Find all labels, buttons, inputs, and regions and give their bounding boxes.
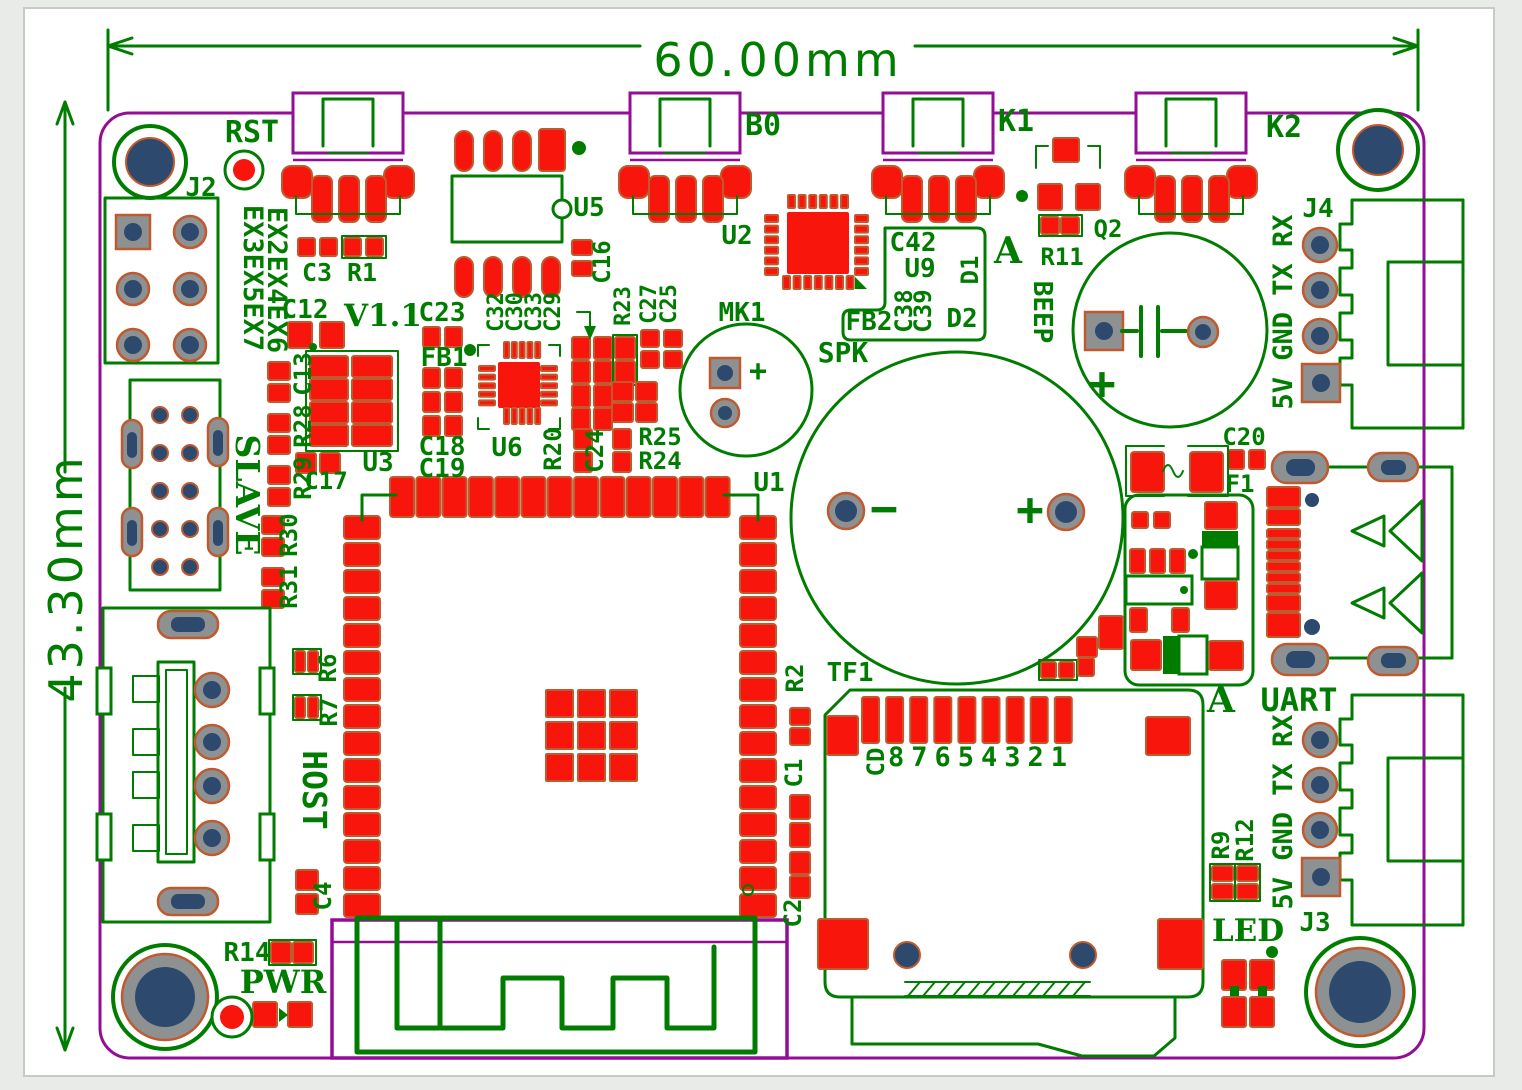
- silk-label-r28: R28: [289, 404, 317, 447]
- silk-label-c16: C16: [588, 240, 616, 283]
- pcb-layout-viewer: 60.00mm43.30mmRSTJ2EX3EX5EX7EX2EX4EX6C3R…: [0, 0, 1522, 1090]
- reset-pad: [225, 151, 263, 189]
- silk-label-c2: C2: [779, 899, 807, 928]
- silk-label-c12: C12: [282, 295, 329, 325]
- silk-label-c17: C17: [304, 467, 347, 495]
- silk-label-slave: SLAVE: [228, 435, 267, 556]
- silk-label-u5: U5: [573, 193, 604, 223]
- silk-label-fb2: FB2: [846, 307, 893, 337]
- silk-label-c25: C25: [657, 284, 682, 324]
- silk-label-rst: RST: [225, 115, 279, 150]
- silk-label-cd: CD: [862, 748, 890, 777]
- silk-label-87654321: 87654321: [888, 742, 1074, 773]
- silk-label-beep: BEEP: [1027, 281, 1057, 344]
- silk-label-u6: U6: [491, 433, 522, 463]
- silk-label-k1: K1: [998, 104, 1034, 139]
- pcb-drawing-canvas: 60.00mm43.30mmRSTJ2EX3EX5EX7EX2EX4EX6C3R…: [0, 0, 1522, 1090]
- silk-label-j3: J3: [1299, 908, 1330, 938]
- silk-label-pwr: PWR: [240, 963, 327, 1001]
- silk-label-q2: Q2: [1094, 215, 1123, 243]
- silk-label-c24: C24: [581, 429, 609, 472]
- silk-label-c39: C39: [909, 289, 937, 332]
- silk-label-f1: F1: [1226, 470, 1255, 498]
- silk-label-r24: R24: [638, 447, 681, 475]
- silk-label-u3: U3: [362, 448, 393, 478]
- silk-label--: +: [749, 354, 767, 389]
- ic-u3: [306, 343, 398, 451]
- silk-label-r6: R6: [314, 654, 342, 683]
- silk-label-5v-gnd-tx-rx: 5V GND TX RX: [1268, 714, 1299, 909]
- silk-label-b0: B0: [745, 108, 781, 143]
- silk-label-r20: R20: [539, 427, 567, 470]
- silk-label-c4: C4: [309, 882, 337, 911]
- silk-label-60-00mm: 60.00mm: [653, 33, 902, 87]
- silk-label-5v-gnd-tx-rx: 5V GND TX RX: [1268, 214, 1299, 409]
- silk-label-c3: C3: [302, 258, 332, 287]
- silk-label-c20: C20: [1222, 423, 1265, 451]
- silk-label-r23: R23: [611, 286, 636, 326]
- silk-label--: +: [1016, 482, 1044, 536]
- silk-label--: +: [1088, 356, 1116, 410]
- passives-right-of-u1: [790, 708, 810, 898]
- silk-label--: −: [870, 481, 898, 535]
- silk-label-j4: J4: [1302, 194, 1333, 224]
- silk-label-c13: C13: [289, 352, 317, 395]
- silk-label-j2: J2: [185, 173, 216, 203]
- silk-label-uart: UART: [1260, 681, 1337, 719]
- silk-label-c1: C1: [780, 759, 808, 788]
- silk-label-a: A: [1206, 679, 1236, 721]
- silk-label-v1-1: V1.1: [343, 298, 422, 334]
- silk-label-u9: U9: [904, 254, 935, 284]
- silk-label-d2: D2: [946, 304, 977, 334]
- silk-label-host: HOST: [295, 750, 334, 829]
- silk-label-tf1: TF1: [827, 658, 874, 688]
- silk-label-r1: R1: [347, 258, 377, 287]
- silk-label-a: A: [993, 230, 1023, 272]
- silk-label-r11: R11: [1040, 243, 1083, 271]
- silk-label-led: LED: [1212, 913, 1284, 949]
- silk-label-u2: U2: [721, 221, 752, 251]
- silk-label-spk: SPK: [818, 336, 869, 369]
- silk-label-k2: K2: [1266, 110, 1302, 145]
- silk-label-r2: R2: [781, 664, 809, 693]
- silk-label-d1: D1: [956, 256, 984, 285]
- silk-label-c23: C23: [419, 298, 466, 328]
- silk-label-c19: C19: [419, 454, 466, 484]
- silk-label-fb1: FB1: [421, 343, 468, 373]
- silk-label-r7: R7: [315, 698, 343, 727]
- silk-label-c29: C29: [541, 292, 566, 332]
- silk-label-43-30mm: 43.30mm: [39, 453, 93, 702]
- silk-label-u1: U1: [753, 468, 784, 498]
- silk-label-r31: R31: [275, 565, 303, 608]
- silk-label-r30: R30: [275, 513, 303, 556]
- silk-label-ex2ex4ex6: EX2EX4EX6: [261, 207, 292, 353]
- silk-label-r12: R12: [1231, 818, 1259, 861]
- silk-label-mk1: MK1: [719, 298, 766, 328]
